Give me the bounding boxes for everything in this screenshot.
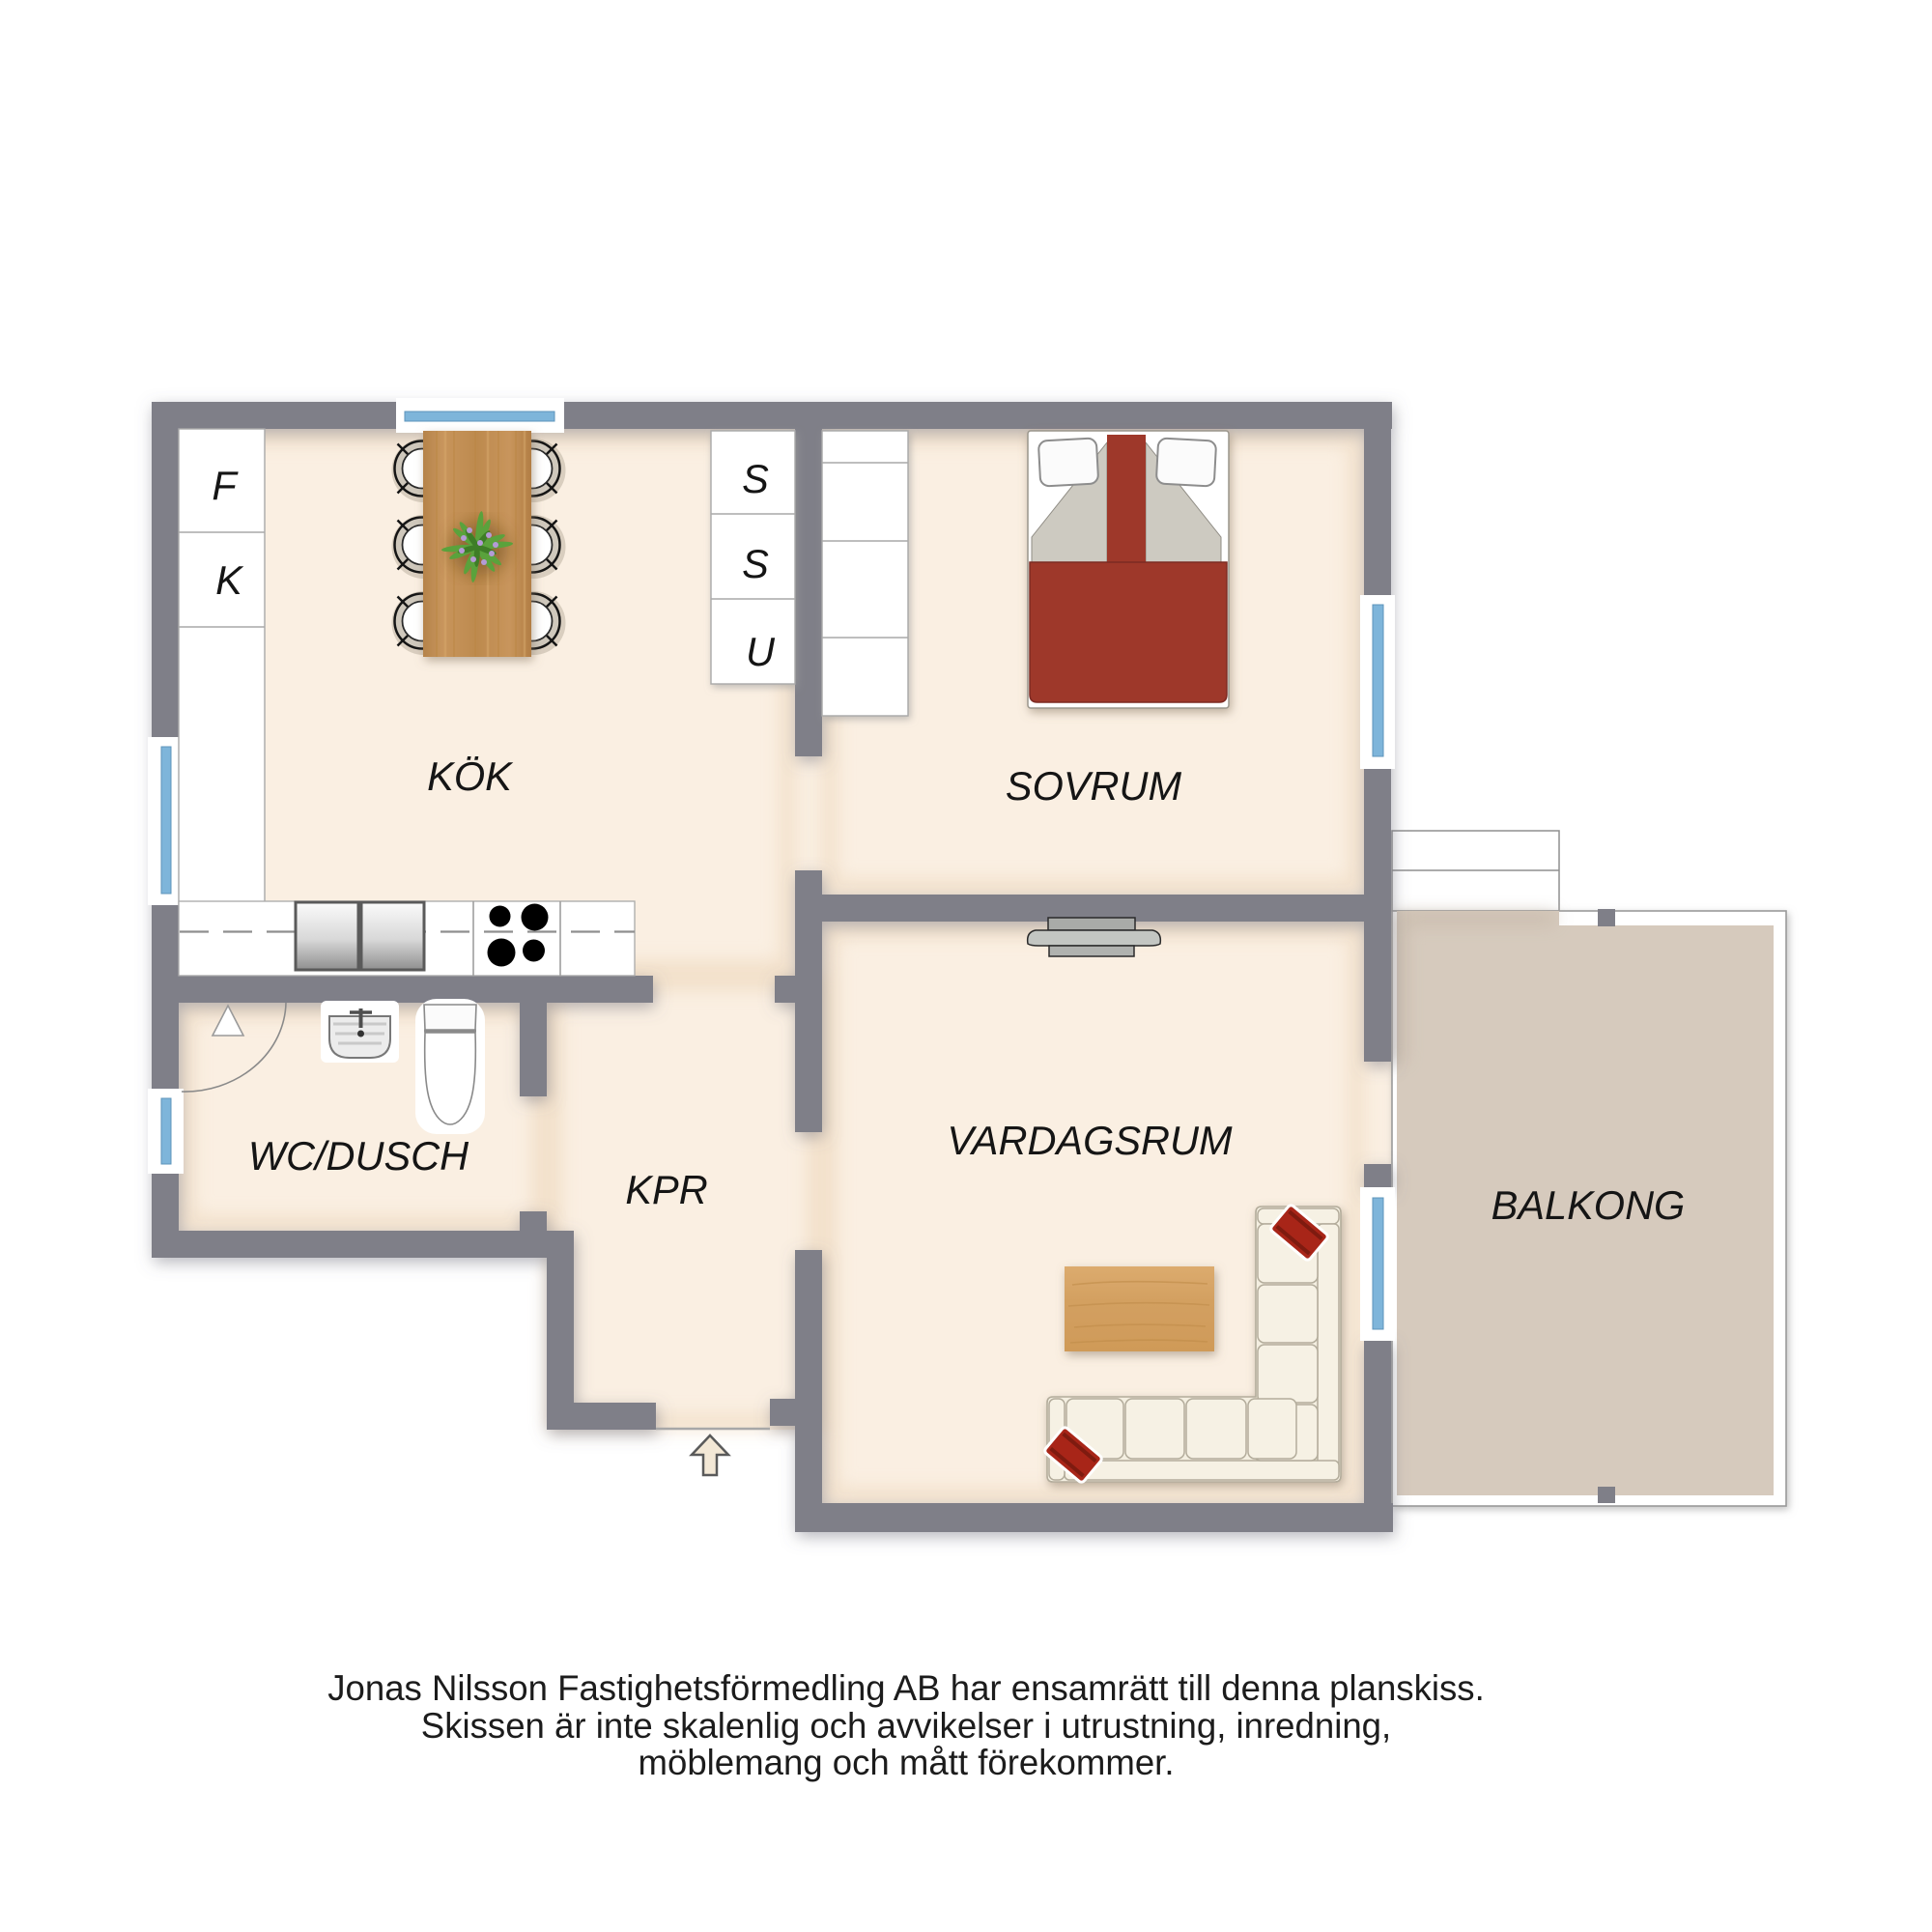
svg-text:KÖK: KÖK	[427, 753, 514, 799]
svg-text:WC/DUSCH: WC/DUSCH	[248, 1133, 469, 1179]
svg-text:K: K	[215, 557, 244, 603]
svg-text:SOVRUM: SOVRUM	[1006, 763, 1182, 809]
svg-text:BALKONG: BALKONG	[1492, 1182, 1686, 1228]
svg-text:VARDAGSRUM: VARDAGSRUM	[947, 1118, 1233, 1163]
svg-text:S: S	[742, 541, 769, 586]
svg-text:möblemang och mått förekommer.: möblemang och mått förekommer.	[639, 1743, 1175, 1782]
svg-text:S: S	[742, 456, 769, 501]
svg-text:KPR: KPR	[625, 1167, 707, 1212]
svg-text:U: U	[746, 629, 776, 674]
svg-text:Skissen är inte skalenlig och: Skissen är inte skalenlig och avvikelser…	[421, 1706, 1391, 1746]
svg-text:F: F	[212, 463, 239, 508]
svg-text:Jonas Nilsson Fastighetsförmed: Jonas Nilsson Fastighetsförmedling AB ha…	[327, 1668, 1485, 1708]
